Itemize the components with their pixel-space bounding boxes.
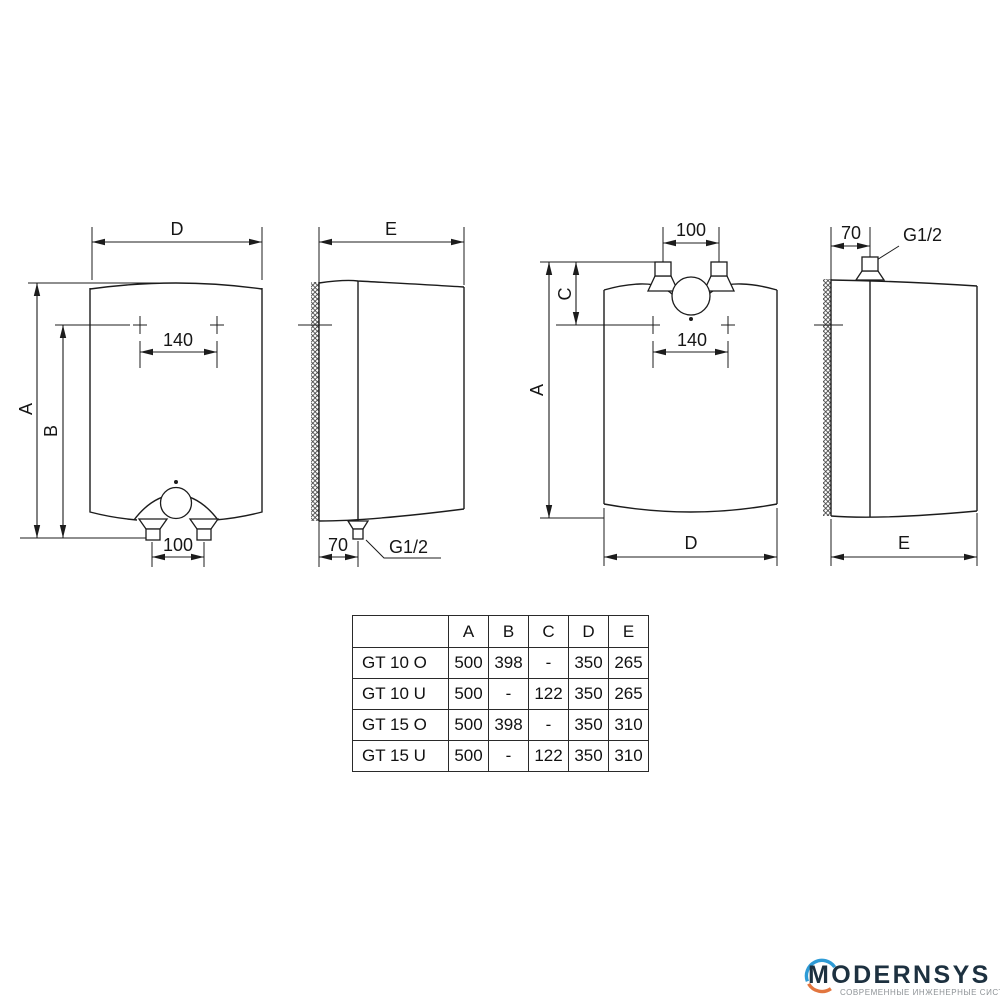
value-cell: 265 — [609, 679, 649, 710]
column-header-model — [353, 616, 449, 648]
outlet-pipe — [348, 521, 368, 529]
safety-valve — [672, 277, 710, 315]
column-header-d: D — [569, 616, 609, 648]
value-cell: - — [489, 741, 529, 772]
width-label: D — [685, 533, 698, 553]
body-outline — [319, 509, 464, 521]
body-outline — [604, 504, 777, 512]
body-outline — [90, 283, 262, 289]
column-header-b: B — [489, 616, 529, 648]
brand-name: MODERNSYS — [808, 961, 991, 990]
table-row: GT 15 O 500 398 - 350 310 — [353, 710, 649, 741]
depth-label: E — [385, 219, 397, 239]
value-cell: - — [529, 648, 569, 679]
value-cell: 265 — [609, 648, 649, 679]
outlet-spacing-label: 100 — [163, 535, 193, 555]
model-cell: GT 10 O — [353, 648, 449, 679]
outlet-pipe — [197, 529, 211, 540]
value-cell: 350 — [569, 710, 609, 741]
value-cell: 122 — [529, 679, 569, 710]
value-cell: 500 — [449, 648, 489, 679]
column-header-c: C — [529, 616, 569, 648]
thread-label: G1/2 — [389, 537, 428, 557]
mount-offset-label: C — [555, 288, 575, 301]
value-cell: 350 — [569, 679, 609, 710]
outlet-pipe — [146, 529, 160, 540]
dimension-drawing: D A B 140 100 E — [0, 0, 1000, 1000]
wall-offset-label: 70 — [328, 535, 348, 555]
body-outline — [831, 511, 977, 517]
value-cell: 350 — [569, 741, 609, 772]
value-cell: - — [489, 679, 529, 710]
inlet-pipe — [856, 271, 884, 280]
inlet-spacing-label: 100 — [676, 220, 706, 240]
mount-spacing-label: 140 — [163, 330, 193, 350]
table-header-row: A B C D E — [353, 616, 649, 648]
width-label: D — [171, 219, 184, 239]
view-front-under-sink: 100 C A 140 D — [527, 220, 777, 566]
outlet-pipe — [190, 519, 218, 529]
body-outline — [215, 288, 262, 520]
value-cell: 398 — [489, 648, 529, 679]
inlet-pipe — [711, 262, 727, 276]
column-header-e: E — [609, 616, 649, 648]
model-cell: GT 15 O — [353, 710, 449, 741]
drain-dot — [174, 480, 178, 484]
body-outline — [319, 280, 464, 287]
outlet-pipe — [139, 519, 167, 529]
column-header-a: A — [449, 616, 489, 648]
total-height-label: A — [16, 403, 36, 415]
body-outline — [604, 290, 777, 504]
table-row: GT 10 U 500 - 122 350 265 — [353, 679, 649, 710]
mount-spacing-label: 140 — [677, 330, 707, 350]
inlet-pipe — [862, 257, 878, 271]
body-outline — [90, 288, 137, 520]
dimension-table: A B C D E GT 10 O 500 398 - 350 265 GT 1… — [352, 615, 649, 772]
table-row: GT 15 U 500 - 122 350 310 — [353, 741, 649, 772]
body-outline — [831, 280, 977, 286]
value-cell: 500 — [449, 679, 489, 710]
value-cell: 122 — [529, 741, 569, 772]
wall-hatch — [311, 282, 319, 521]
view-front-over-sink: D A B 140 100 — [16, 219, 262, 567]
wall-hatch — [823, 279, 831, 516]
model-cell: GT 15 U — [353, 741, 449, 772]
view-side-over-sink: E 70 G1/2 — [298, 219, 464, 567]
value-cell: 500 — [449, 741, 489, 772]
page: D A B 140 100 E — [0, 0, 1000, 1000]
value-cell: 500 — [449, 710, 489, 741]
inlet-pipe — [655, 262, 671, 276]
value-cell: 398 — [489, 710, 529, 741]
value-cell: 310 — [609, 741, 649, 772]
outlet-pipe — [353, 529, 363, 539]
brand-tagline: СОВРЕМЕННЫЕ ИНЖЕНЕРНЫЕ СИСТЕМЫ — [840, 988, 1000, 997]
value-cell: - — [529, 710, 569, 741]
depth-label: E — [898, 533, 910, 553]
value-cell: 310 — [609, 710, 649, 741]
model-cell: GT 10 U — [353, 679, 449, 710]
brand-logo: MODERNSYS СОВРЕМЕННЫЕ ИНЖЕНЕРНЫЕ СИСТЕМЫ — [793, 951, 1000, 1000]
safety-valve — [161, 488, 192, 519]
view-side-under-sink: 70 G1/2 E — [814, 223, 977, 566]
drain-dot — [689, 317, 693, 321]
table-row: GT 10 O 500 398 - 350 265 — [353, 648, 649, 679]
thread-label: G1/2 — [903, 225, 942, 245]
value-cell: 350 — [569, 648, 609, 679]
wall-offset-label: 70 — [841, 223, 861, 243]
total-height-label: A — [527, 384, 547, 396]
mount-height-label: B — [41, 425, 61, 437]
